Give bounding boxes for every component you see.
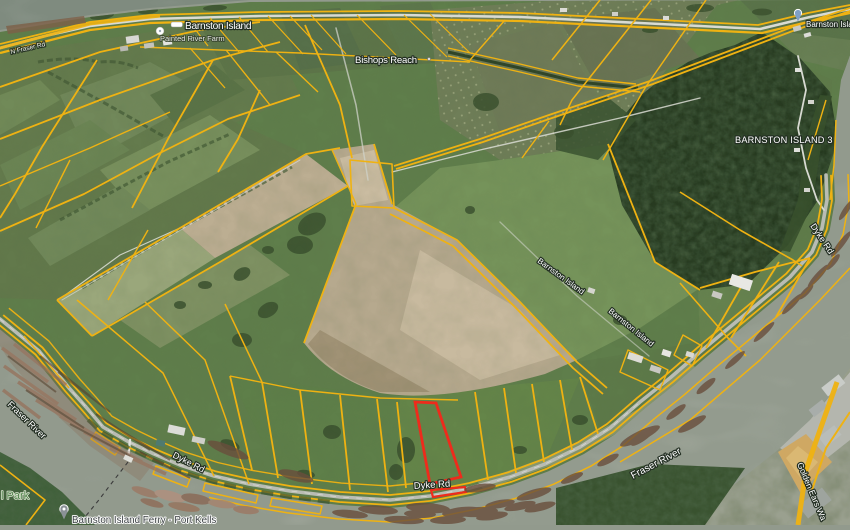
svg-text:Barnston Island: Barnston Island [185, 21, 252, 32]
svg-text:Barnston Island: Barnston Island [806, 20, 850, 29]
svg-text:BARNSTON ISLAND 3: BARNSTON ISLAND 3 [735, 135, 833, 145]
svg-text:l Park: l Park [1, 490, 30, 502]
svg-text:Painted River Farm: Painted River Farm [160, 34, 225, 43]
svg-text:Barnston Island Ferry - Port K: Barnston Island Ferry - Port Kells [72, 515, 216, 525]
svg-text:Bishops Reach: Bishops Reach [355, 55, 417, 66]
